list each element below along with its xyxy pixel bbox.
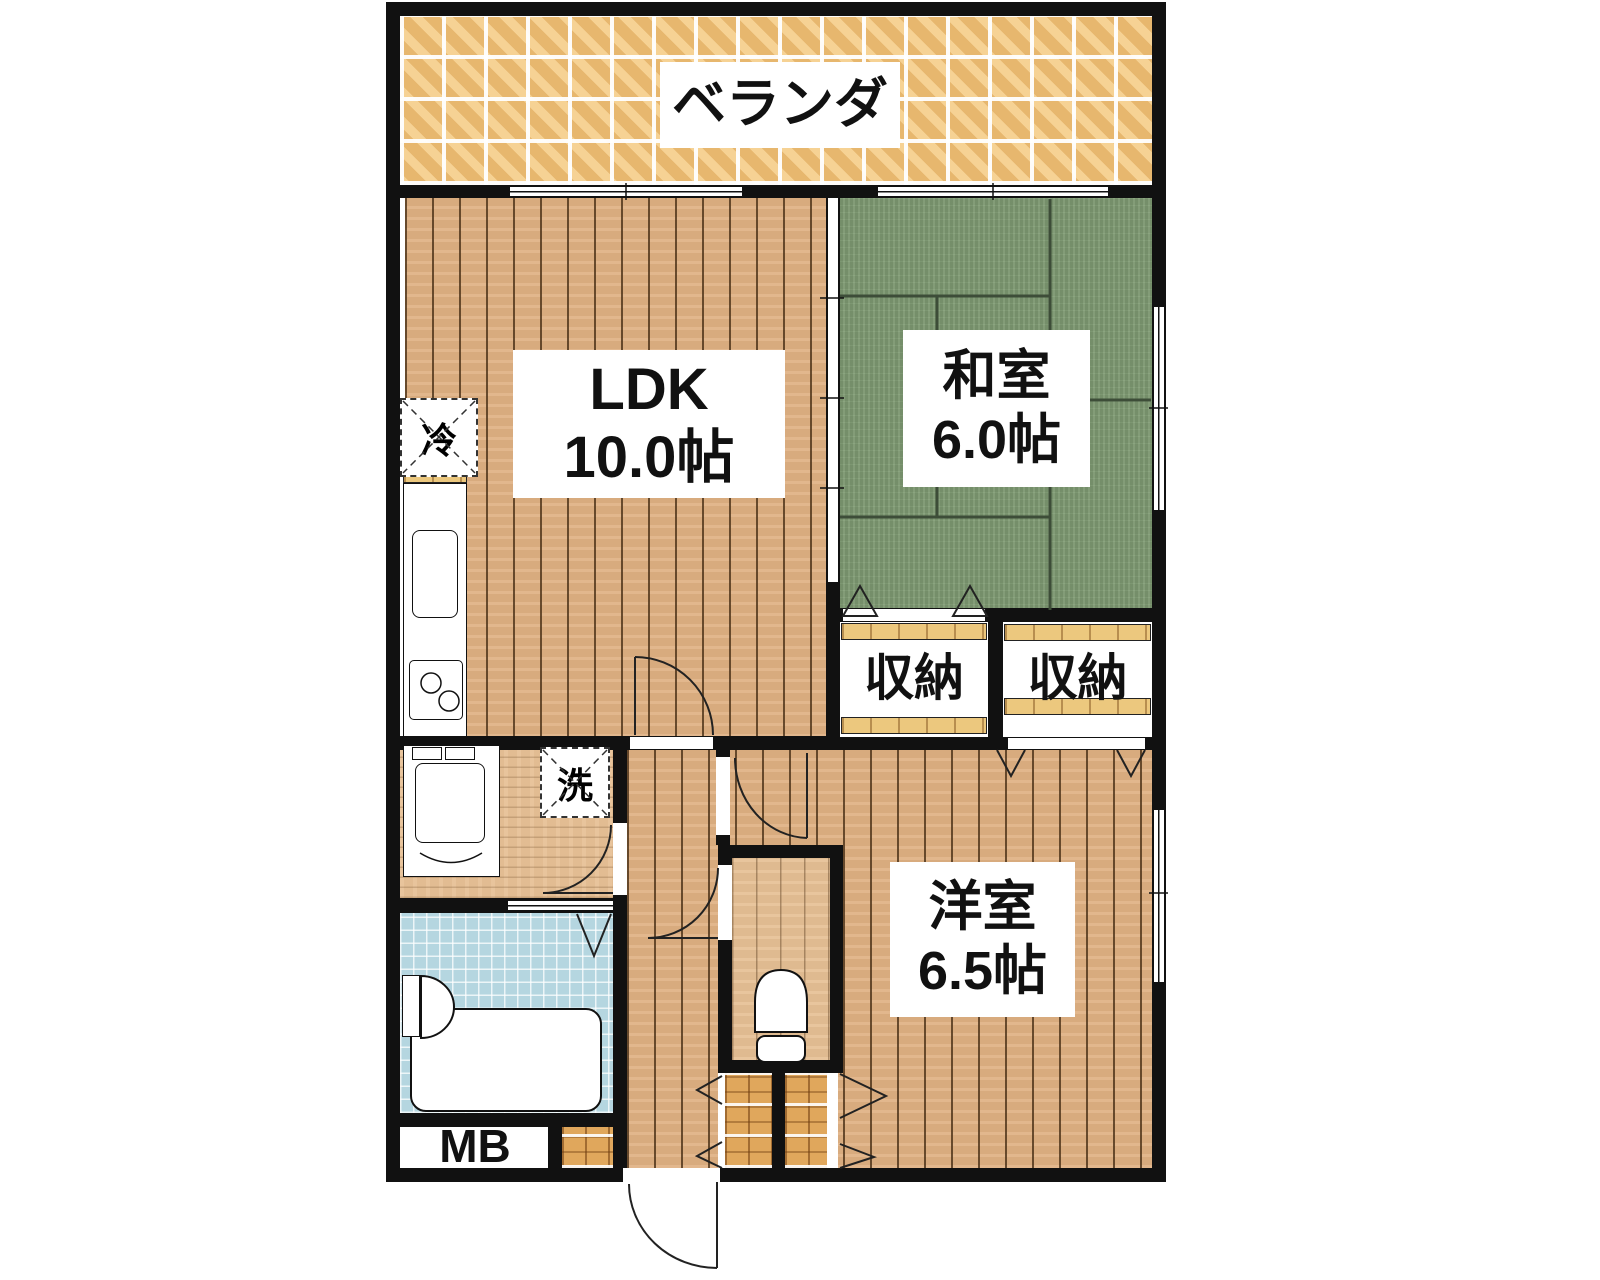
western-room-size-text: 6.5帖 bbox=[918, 940, 1047, 1004]
japanese-room-label-text: 和室 bbox=[943, 345, 1051, 409]
closet-door-western bbox=[1008, 738, 1145, 749]
door-opening-ldk bbox=[630, 737, 713, 749]
window-balcony-ldk bbox=[510, 185, 742, 198]
ldk-size-text: 10.0帖 bbox=[564, 424, 735, 492]
shoe-door-strip-right bbox=[827, 1073, 838, 1168]
bath-faucet-base bbox=[402, 975, 420, 1037]
wall-mb-divider bbox=[548, 1127, 562, 1168]
meter-box-label-text: MB bbox=[439, 1119, 511, 1173]
vanity-faucet-right bbox=[445, 747, 475, 760]
storage-left-shelf-top bbox=[841, 623, 987, 640]
ldk-label-text: LDK bbox=[589, 356, 708, 424]
sliding-door-ldk-washitsu bbox=[826, 198, 840, 582]
label-ldk: LDK 10.0帖 bbox=[513, 350, 785, 498]
floor-plan: 冷 洗 bbox=[0, 0, 1600, 1280]
door-opening-western bbox=[716, 757, 730, 835]
western-room-label-text: 洋室 bbox=[929, 876, 1037, 940]
door-opening-toilet bbox=[718, 865, 732, 940]
storage-right-label-text: 収納 bbox=[1028, 649, 1128, 708]
label-japanese-room: 和室 6.0帖 bbox=[903, 330, 1090, 487]
vanity-basin bbox=[415, 763, 485, 843]
window-washitsu-east bbox=[1152, 307, 1166, 510]
refrigerator-box: 冷 bbox=[400, 398, 478, 477]
wall-toilet-bottom bbox=[718, 1060, 843, 1073]
wall-top bbox=[386, 2, 1166, 16]
wall-corridor-west bbox=[613, 750, 627, 1168]
door-opening-washroom bbox=[613, 823, 627, 895]
shoe-door-strip-left bbox=[718, 1073, 725, 1168]
kitchen-stove bbox=[409, 660, 463, 720]
shoe-storage-left bbox=[725, 1073, 772, 1168]
wall-right bbox=[1152, 2, 1166, 1182]
wall-left bbox=[386, 2, 400, 1182]
shoe-storage-right bbox=[785, 1073, 827, 1168]
bathtub bbox=[410, 1008, 602, 1112]
refrigerator-label: 冷 bbox=[421, 412, 457, 464]
storage-left-label-text: 収納 bbox=[864, 649, 964, 708]
storage-left-shelf-bottom bbox=[841, 717, 987, 734]
label-meter-box: MB bbox=[405, 1121, 545, 1171]
washer-box: 洗 bbox=[540, 747, 610, 818]
kitchen-sink bbox=[412, 530, 458, 618]
window-balcony-washitsu bbox=[878, 185, 1108, 198]
sliding-door-bathroom bbox=[508, 899, 613, 912]
wall-shoe-middle bbox=[772, 1073, 785, 1168]
wall-storage-left-side bbox=[826, 620, 840, 750]
vanity-faucet-left bbox=[412, 747, 442, 760]
label-western-room: 洋室 6.5帖 bbox=[890, 862, 1075, 1017]
window-western-east bbox=[1152, 810, 1166, 982]
entry-tile-cell bbox=[562, 1127, 613, 1168]
label-storage-right: 収納 bbox=[1003, 642, 1152, 714]
japanese-room-size-text: 6.0帖 bbox=[932, 409, 1061, 473]
toilet-floor bbox=[732, 858, 830, 1060]
wall-storage-middle bbox=[988, 608, 1003, 750]
label-balcony: ベランダ bbox=[660, 62, 900, 148]
balcony-label-text: ベランダ bbox=[672, 73, 888, 137]
wall-toilet-right bbox=[830, 845, 843, 1073]
label-storage-left: 収納 bbox=[840, 642, 988, 714]
entrance-door-arc bbox=[629, 1184, 717, 1268]
storage-right-shelf-top bbox=[1004, 624, 1151, 641]
washer-label: 洗 bbox=[557, 757, 593, 809]
entrance-opening bbox=[623, 1168, 720, 1182]
closet-door-washitsu bbox=[843, 609, 985, 621]
wall-toilet-top bbox=[718, 845, 843, 858]
